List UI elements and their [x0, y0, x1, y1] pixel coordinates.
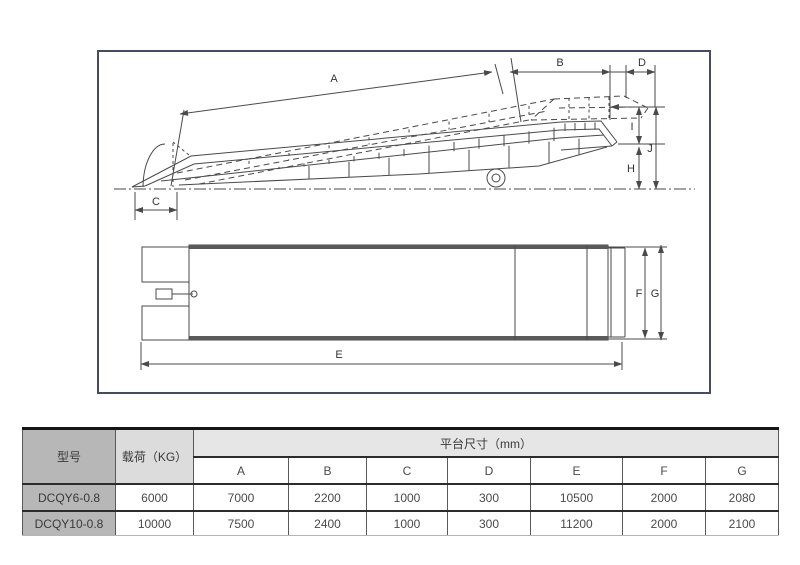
dim-label-d: D — [638, 57, 646, 69]
dim-label-j: J — [647, 143, 653, 155]
spec-table: 型号 载荷（KG） 平台尺寸（mm） A B C D E F G DCQY6-0… — [22, 427, 779, 536]
lip-plan — [608, 248, 625, 337]
cell-dim: 1000 — [367, 511, 448, 536]
header-dim-c: C — [367, 457, 448, 484]
dim-label-h: H — [627, 163, 635, 175]
platform-sections — [515, 245, 587, 340]
header-dim-e: E — [531, 457, 623, 484]
leg-bottom — [142, 306, 189, 340]
header-model: 型号 — [23, 429, 116, 485]
cell-dim: 1000 — [367, 484, 448, 511]
header-platform-size: 平台尺寸（mm） — [194, 429, 779, 458]
header-load: 载荷（KG） — [116, 429, 194, 485]
dim-label-i: I — [630, 121, 633, 133]
ramp-lowered — [132, 121, 617, 187]
plan-view-drawing: E F G — [141, 245, 667, 370]
dimension-E: E — [141, 342, 622, 370]
leg-top — [142, 247, 189, 282]
dimension-C: C — [135, 192, 177, 220]
header-dim-a: A — [194, 457, 289, 484]
dim-label-g: G — [651, 288, 660, 300]
cell-dim: 300 — [448, 484, 531, 511]
header-dim-g: G — [706, 457, 779, 484]
dim-label-e: E — [335, 349, 342, 361]
cell-dim: 10500 — [531, 484, 623, 511]
dimension-B: B — [510, 57, 610, 122]
side-view-drawing: A B D I H J — [114, 57, 695, 220]
cell-dim: 2400 — [289, 511, 367, 536]
table-row: DCQY6-0.8 6000 7000 2200 1000 300 10500 … — [23, 484, 779, 511]
cell-model: DCQY10-0.8 — [23, 511, 116, 536]
cell-dim: 2000 — [623, 511, 706, 536]
dimension-A: A — [171, 64, 503, 186]
dim-label-f: F — [636, 288, 643, 300]
cell-model: DCQY6-0.8 — [23, 484, 116, 511]
dimension-IJH: I H J — [610, 104, 665, 189]
dim-label-b: B — [556, 57, 563, 69]
header-dim-f: F — [623, 457, 706, 484]
cell-dim: 2100 — [706, 511, 779, 536]
wheel — [487, 169, 505, 187]
table-row: DCQY10-0.8 10000 7500 2400 1000 300 1120… — [23, 511, 779, 536]
pump-handle — [156, 289, 197, 299]
dim-label-c: C — [152, 196, 160, 208]
cell-dim: 2200 — [289, 484, 367, 511]
cell-dim: 300 — [448, 511, 531, 536]
ramp-raised-dashed — [177, 96, 648, 184]
cell-dim: 2080 — [706, 484, 779, 511]
cell-dim: 11200 — [531, 511, 623, 536]
dimension-D: D — [610, 57, 655, 107]
cell-load: 10000 — [116, 511, 194, 536]
header-dim-d: D — [448, 457, 531, 484]
cell-dim: 7500 — [194, 511, 289, 536]
dimension-FG: F G — [608, 245, 667, 340]
platform-outline — [189, 245, 608, 340]
cell-dim: 7000 — [194, 484, 289, 511]
dim-label-a: A — [330, 73, 338, 85]
drawing-panel: A B D I H J — [97, 50, 711, 394]
header-dim-b: B — [289, 457, 367, 484]
technical-drawing: A B D I H J — [99, 52, 709, 392]
cell-load: 6000 — [116, 484, 194, 511]
cell-dim: 2000 — [623, 484, 706, 511]
